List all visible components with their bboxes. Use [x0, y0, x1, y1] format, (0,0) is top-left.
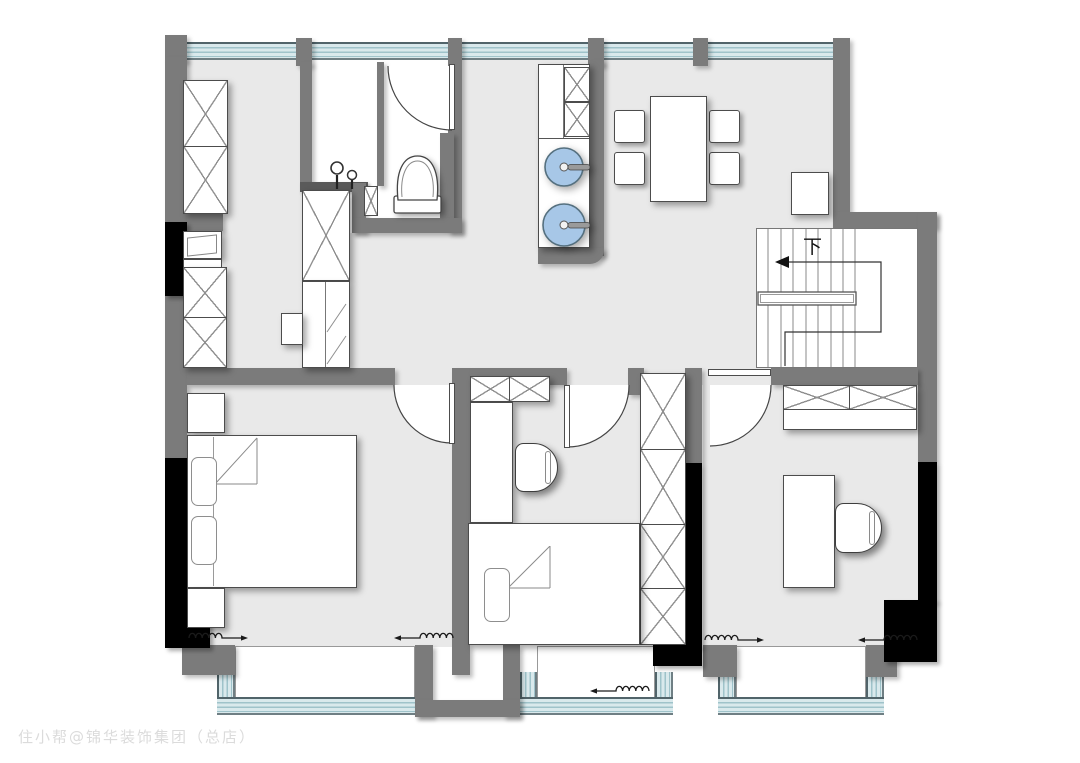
- door-leaf: [449, 383, 455, 444]
- blanket-fold: [214, 436, 260, 486]
- curtain-symbol: [392, 627, 456, 641]
- overhead-cabinet: [783, 385, 917, 430]
- shoe-cabinet: [183, 231, 222, 259]
- dining-table: [650, 96, 707, 202]
- pillow: [191, 516, 217, 565]
- dining-chair: [614, 152, 645, 185]
- nightstand: [187, 588, 225, 628]
- curtain-symbol: [186, 627, 250, 641]
- pillow: [484, 568, 510, 622]
- storage-cabinet: [183, 267, 227, 368]
- pillow: [191, 457, 217, 506]
- side-cabinet: [281, 313, 303, 345]
- kitchen-upper-cabinet: [564, 67, 590, 102]
- nightstand: [187, 393, 225, 433]
- overhead-cabinet: [470, 376, 550, 402]
- dining-chair: [614, 110, 645, 143]
- hall-cabinet: [302, 190, 350, 281]
- dining-chair: [709, 110, 740, 143]
- wardrobe: [640, 373, 686, 645]
- curtain-symbol: [856, 629, 920, 643]
- watermark: 住小帮@锦华装饰集团（总店）: [18, 726, 256, 747]
- floor-plan: 下: [0, 0, 1080, 763]
- dining-chair: [709, 152, 740, 185]
- toilet-icon: [390, 148, 446, 218]
- kitchen-sink-basins: [540, 145, 596, 249]
- cabinet: [791, 172, 829, 215]
- hall-cabinet-lower: [302, 281, 350, 368]
- curtain-symbol: [588, 680, 652, 694]
- desk: [470, 402, 513, 523]
- curtain-symbol: [702, 629, 766, 643]
- bathroom-cabinet: [364, 186, 378, 216]
- wardrobe: [183, 80, 228, 214]
- shower-faucet-icon: [325, 155, 365, 195]
- blanket-fold: [507, 546, 553, 592]
- door-leaf: [708, 369, 771, 376]
- kitchen-upper-cabinet: [564, 102, 590, 137]
- door-leaf: [564, 385, 570, 448]
- desk: [783, 475, 835, 588]
- door-leaf: [449, 64, 455, 130]
